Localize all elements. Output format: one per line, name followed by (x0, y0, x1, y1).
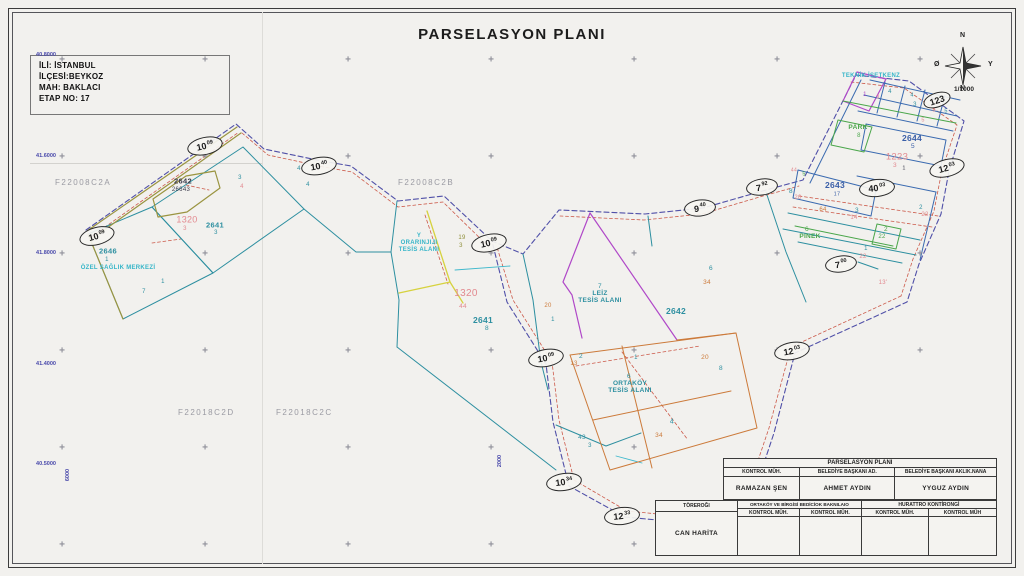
grid-cross: + (488, 443, 494, 454)
road-width-value: 10 (480, 238, 492, 250)
parcel-label: 3 (588, 443, 592, 449)
tb-signature-4 (929, 517, 996, 555)
parcel-label: 19 (458, 235, 465, 241)
tb-lower-right-header: HURATTRO KONTİRONGİ (862, 501, 996, 508)
grid-cross: + (59, 540, 65, 551)
parcel-label: 26643 (172, 187, 190, 193)
tb-sub-4: KONTROL MÜH (929, 509, 996, 516)
parcel-label: 13' (879, 280, 888, 286)
parcel-label: 3 (893, 163, 897, 170)
grid-cross: + (345, 346, 351, 357)
tb-header-kontrol: KONTROL MÜH. (724, 468, 800, 476)
parcel-label: 8 (719, 366, 723, 373)
parcel-label: 43 (578, 435, 586, 442)
grid-cross: + (345, 55, 351, 66)
parcel-label: 1 (551, 317, 555, 323)
parcel-label: 2642 (174, 177, 192, 185)
tb-sub-1: KONTROL MÜH. (738, 509, 800, 516)
road-width-value: 10 (310, 161, 322, 173)
tb-name-2: AHMET AYDIN (800, 477, 895, 499)
parcel-label: 64 (819, 207, 826, 213)
road-width-superscript: 92 (761, 181, 768, 188)
parcel-label: 3 (214, 230, 218, 236)
road-width-value: 10 (537, 353, 549, 365)
grid-cross: + (202, 249, 208, 260)
parcel-label: 1 (105, 257, 109, 263)
tb-header-baskan: BELEDİYE BAŞKANI AKLIK.NANA (895, 468, 996, 476)
title-block-lower: ORTAKÖY VE BİRGİSİ BEDİCİOK BAKNILAIO HU… (737, 500, 997, 556)
parcel-label: 3 (459, 243, 463, 249)
grid-cross: + (488, 540, 494, 551)
grid-cross: + (631, 152, 637, 163)
parcel-label: 34 (703, 280, 711, 287)
road-width-value: 12 (783, 346, 795, 358)
grid-cross: + (774, 249, 780, 260)
parcel-label: 5 (921, 118, 924, 124)
grid-cross: + (345, 540, 351, 551)
road-width-value: 12 (613, 511, 624, 522)
parcel-label: TEKNİK İSETKENZ (842, 73, 900, 79)
sheet-label: F22008C2A (55, 178, 111, 187)
parcel-label: 1 (634, 355, 638, 361)
parcel-label: 20 (701, 355, 709, 362)
parcel-label: 2646 (99, 247, 117, 255)
parcel-label: 2641 (206, 221, 224, 229)
grid-coordinate-label: 41.6000 (36, 153, 56, 159)
tb-contractor-name: CAN HARİTA (656, 512, 737, 555)
grid-cross: + (917, 346, 923, 357)
parcel-label: 2644 (902, 134, 922, 143)
parcel-label: 3 (855, 208, 859, 215)
parcel-label: 34 (655, 433, 663, 440)
grid-coordinate-label: 40.8000 (36, 52, 56, 58)
tb-header-baskan-ad: BELEDİYE BAŞKANI AD. (800, 468, 895, 476)
road-width-superscript: 40 (320, 159, 327, 166)
grid-cross: + (917, 249, 923, 260)
title-block-plan-title: PARSELASYON PLANI (724, 459, 996, 467)
road-width-superscript: 09 (98, 228, 105, 235)
grid-cross: + (59, 249, 65, 260)
parcel-label: 2 (884, 227, 888, 234)
parcel-label: 4 (888, 89, 892, 95)
parcel-lines-orange (570, 333, 757, 470)
parcel-label: 3 (183, 226, 187, 232)
compass-east-label: Y (988, 61, 993, 68)
parcel-label: TESİS ALANI (399, 247, 439, 253)
parcel-label: 2641 (473, 316, 493, 325)
parcel-label: 17 (834, 192, 841, 198)
parcel-label: 2643 (825, 181, 845, 190)
parcel-label: 1 (864, 246, 868, 252)
title-block-contractor: TÖREROĞI CAN HARİTA (655, 500, 738, 556)
grid-cross: + (488, 152, 494, 163)
grid-coordinate-label: 6000 (65, 469, 71, 481)
tb-name-1: RAMAZAN ŞEN (724, 477, 800, 499)
parcel-label: 22 (859, 254, 866, 260)
road-width-superscript: 09 (547, 351, 554, 358)
parcel-label: Y (417, 233, 421, 239)
road-width-value: 40 (868, 183, 879, 194)
parcel-label: 1320 (176, 216, 197, 225)
parcel-label: 4 (910, 93, 913, 99)
parcel-label: 5 (944, 109, 947, 115)
parcel-label: 8 (857, 133, 861, 139)
grid-cross: + (917, 152, 923, 163)
grid-cross: + (59, 443, 65, 454)
parcel-label: 2 (919, 205, 923, 211)
parcel-label: TESİS ALANI (608, 388, 652, 395)
grid-coordinate-label: 41.4000 (36, 361, 56, 367)
grid-cross: + (345, 152, 351, 163)
parcel-label: 5 (802, 172, 805, 178)
road-width-value: 10 (196, 141, 208, 153)
grid-cross: + (59, 152, 65, 163)
tb-signature-3 (862, 517, 929, 555)
parcel-label: 44 (459, 304, 467, 311)
parcel-label: 6 (709, 266, 713, 273)
parcel-label: 20 (544, 303, 551, 309)
grid-cross: + (631, 55, 637, 66)
parcel-label: 3 (238, 175, 242, 181)
grid-cross: + (202, 55, 208, 66)
sheet-label: F22018C2D (178, 408, 235, 417)
road-width-superscript: 34 (566, 475, 573, 482)
tb-sub-3: KONTROL MÜH. (862, 509, 929, 516)
grid-cross: + (345, 249, 351, 260)
parcel-label: PARK (848, 125, 867, 132)
tb-signature-2 (800, 517, 862, 555)
grid-cross: + (774, 55, 780, 66)
grid-cross: + (59, 55, 65, 66)
parcel-label: 1223 (886, 152, 908, 162)
compass-west-label: Ø (934, 61, 939, 68)
grid-cross: + (631, 443, 637, 454)
parcel-label: 1320 (454, 289, 477, 299)
grid-cross: + (774, 152, 780, 163)
compass-north-label: N (960, 32, 965, 39)
grid-cross: + (59, 346, 65, 357)
parcel-label: 8 (485, 326, 489, 333)
grid-cross: + (488, 346, 494, 357)
road-width-superscript: 09 (490, 236, 497, 243)
road-width-superscript: 00 (840, 258, 847, 265)
road-width-superscript: 03 (793, 344, 800, 351)
grid-cross: + (631, 540, 637, 551)
road-width-superscript: 09 (206, 139, 213, 146)
grid-coordinate-label: 41.8000 (36, 250, 56, 256)
road-width-superscript: 33 (624, 510, 631, 517)
parcel-label: 4 (670, 419, 674, 426)
parcel-label: 8 (789, 189, 793, 196)
parcel-label: ÖZEL SAĞLIK MERKEZİ (81, 265, 156, 271)
grid-cross: + (345, 443, 351, 454)
tb-sub-2: KONTROL MÜH. (800, 509, 862, 516)
tb-name-3: YYGUZ AYDIN (895, 477, 996, 499)
grid-cross: + (202, 443, 208, 454)
parcel-label: 2642 (666, 307, 686, 316)
tb-signature-1 (738, 517, 800, 555)
parcel-label: 4 (306, 182, 310, 188)
grid-cross: + (917, 55, 923, 66)
title-block-upper: PARSELASYON PLANI KONTROL MÜH. BELEDİYE … (723, 458, 997, 500)
parcel-label: 1 (161, 279, 165, 285)
parcel-label: TESİS ALANI (578, 298, 622, 305)
parcel-label: 3 (913, 102, 917, 108)
road-width-superscript: 40 (699, 202, 706, 209)
parcel-label: 7 (142, 289, 146, 295)
parcel-label: 2 (579, 354, 583, 361)
parcel-label: 5 (911, 144, 915, 151)
grid-cross: + (202, 346, 208, 357)
road-width-value: 9 (693, 203, 699, 213)
parcel-label: 22 (921, 212, 928, 218)
parcel-label: 13 (570, 361, 577, 367)
parcel-label: 4 (240, 184, 244, 190)
grid-coordinate-label: 2000 (497, 455, 503, 467)
tb-lower-mid-header: ORTAKÖY VE BİRGİSİ BEDİCİOK BAKNILAIO (738, 501, 862, 508)
grid-cross: + (202, 540, 208, 551)
grid-cross: + (488, 55, 494, 66)
parcel-label: 1 (863, 92, 867, 98)
sheet-label: F22018C2C (276, 408, 333, 417)
road-width-value: 123 (928, 93, 945, 107)
tb-contractor-header: TÖREROĞI (656, 501, 737, 511)
road-width-value: 10 (555, 477, 566, 488)
road-width-superscript: 03 (948, 161, 955, 168)
parcel-label: PINEK (799, 234, 820, 241)
parcellation-plan-sheet: PARSELASYON PLANI İLİ: İSTANBUL İLÇESİ:B… (0, 0, 1024, 576)
parcel-label: 8 (932, 108, 935, 114)
parcel-label: 3 (876, 95, 879, 101)
grid-coordinate-label: 40.5000 (36, 461, 56, 467)
sheet-label: F22008C2B (398, 178, 454, 187)
grid-cross: + (631, 249, 637, 260)
parcel-label: 1 (902, 166, 905, 172)
parcel-label: 20 (794, 195, 801, 201)
parcel-label: 44 (791, 169, 797, 174)
parcel-label: 22 (878, 234, 885, 240)
road-width-superscript: 03 (879, 182, 886, 189)
parcel-label: 14 (850, 215, 857, 221)
parcel-label: ORARINJIJI (401, 240, 438, 246)
